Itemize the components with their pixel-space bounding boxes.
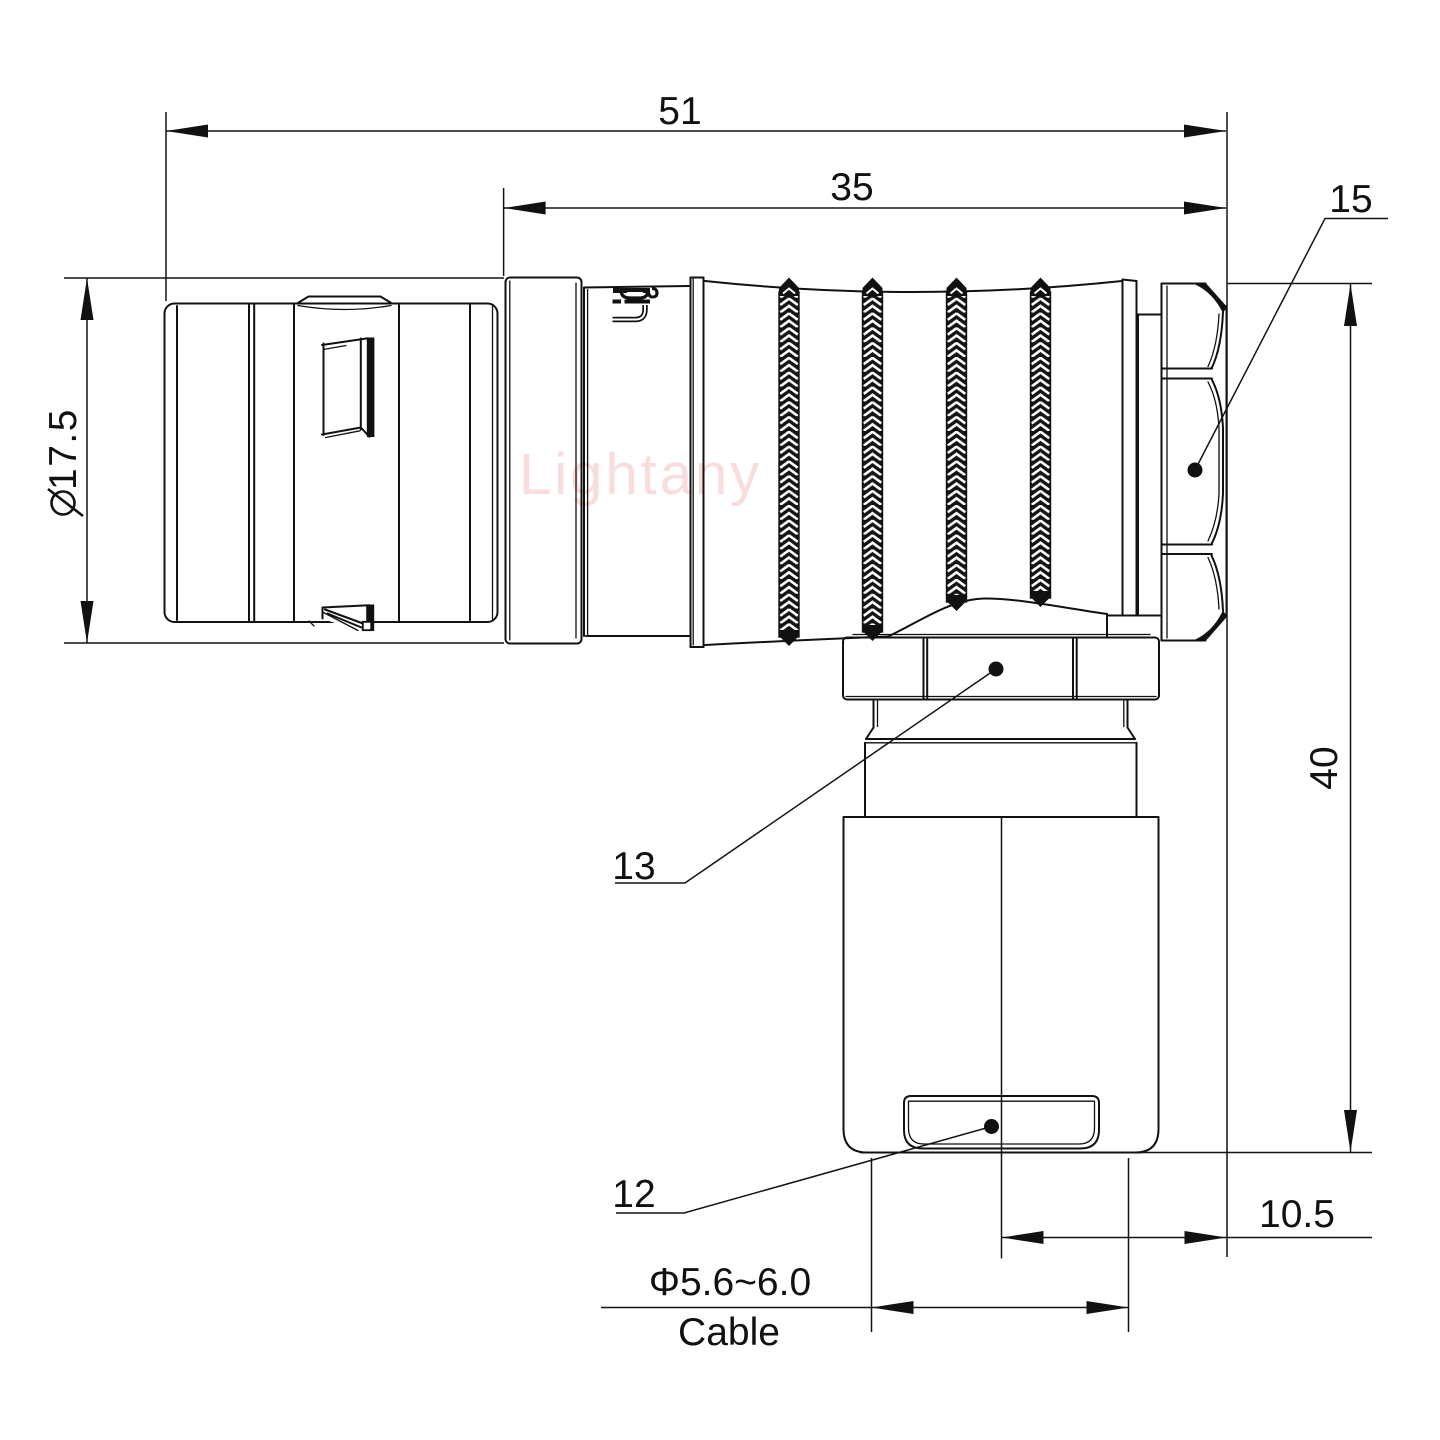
svg-text:12: 12	[612, 1173, 655, 1216]
svg-text:17.5: 17.5	[42, 408, 85, 490]
svg-text:15: 15	[1329, 178, 1372, 221]
svg-text:10.5: 10.5	[1259, 1193, 1335, 1236]
svg-text:13: 13	[612, 845, 655, 888]
svg-text:40: 40	[1303, 746, 1346, 789]
svg-text:51: 51	[658, 90, 701, 133]
svg-text:Cable: Cable	[678, 1311, 780, 1354]
svg-text:Φ5.6~6.0: Φ5.6~6.0	[649, 1261, 811, 1304]
svg-text:35: 35	[830, 166, 873, 209]
svg-text:Lightany: Lightany	[519, 442, 762, 507]
